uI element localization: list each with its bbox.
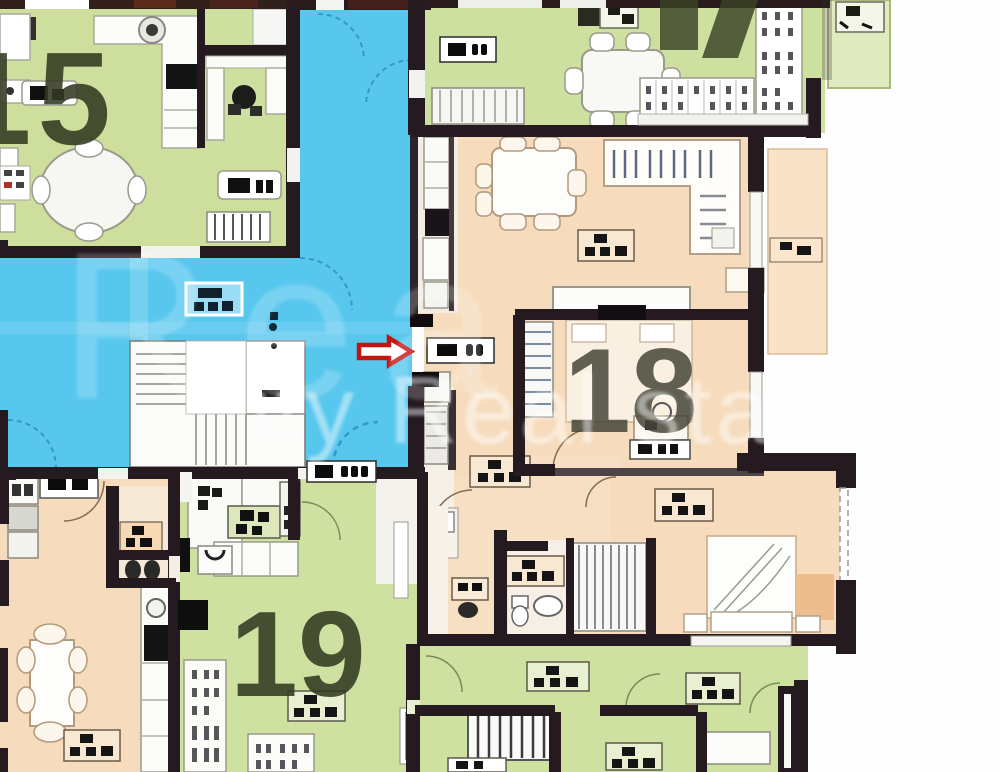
svg-text:15: 15 — [0, 25, 117, 172]
svg-text:19: 19 — [230, 586, 366, 722]
svg-text:ity Real sta: ity Real sta — [250, 357, 773, 464]
